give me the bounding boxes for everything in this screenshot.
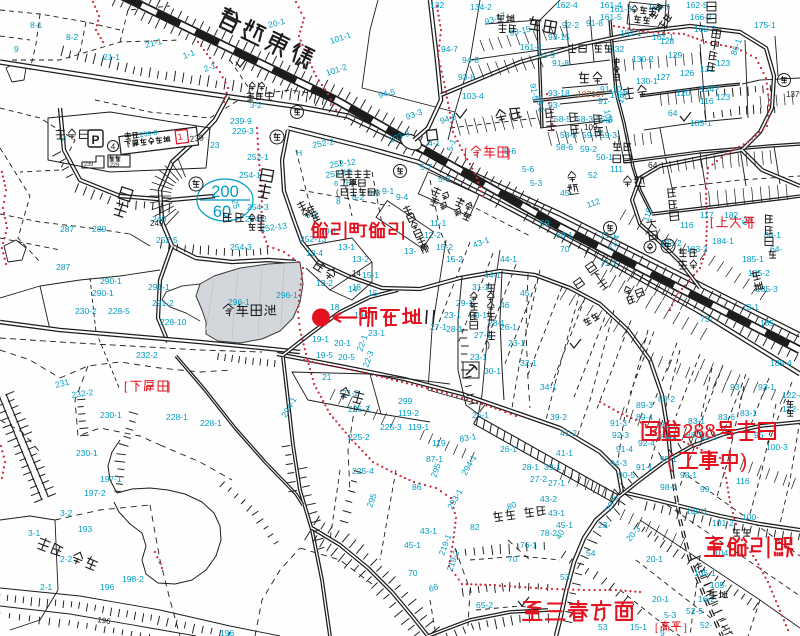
svg-text:]: ] bbox=[750, 215, 753, 229]
svg-text:53: 53 bbox=[598, 622, 608, 632]
svg-text:15-: 15- bbox=[368, 288, 380, 298]
svg-text:130-2: 130-2 bbox=[632, 54, 654, 64]
svg-text:123: 123 bbox=[716, 92, 730, 102]
svg-text:134-2: 134-2 bbox=[470, 2, 492, 12]
svg-text:200: 200 bbox=[211, 183, 239, 201]
svg-text:73-1: 73-1 bbox=[742, 302, 759, 312]
svg-text:109: 109 bbox=[584, 123, 598, 132]
svg-text:296-1: 296-1 bbox=[276, 290, 298, 300]
svg-text:13-: 13- bbox=[404, 246, 416, 256]
svg-text:229-3: 229-3 bbox=[232, 126, 254, 136]
svg-text:91-3: 91-3 bbox=[610, 418, 627, 428]
svg-text:45: 45 bbox=[520, 288, 530, 298]
svg-text:116: 116 bbox=[736, 476, 750, 486]
svg-text:15-1: 15-1 bbox=[362, 270, 379, 280]
svg-text:): ) bbox=[741, 451, 748, 473]
svg-text:132: 132 bbox=[430, 0, 444, 10]
svg-text:27-2: 27-2 bbox=[530, 474, 547, 484]
svg-text:23-1: 23-1 bbox=[470, 352, 487, 362]
svg-text:(: ( bbox=[487, 322, 490, 332]
svg-text:28-1: 28-1 bbox=[522, 462, 539, 472]
svg-text:30-1: 30-1 bbox=[470, 310, 487, 320]
svg-text:228-1: 228-1 bbox=[200, 418, 222, 428]
svg-text:4: 4 bbox=[111, 143, 116, 152]
svg-text:105-: 105- bbox=[710, 580, 727, 590]
svg-text:73-: 73- bbox=[700, 314, 712, 324]
svg-text:91-1: 91-1 bbox=[636, 462, 653, 472]
svg-text:43-1: 43-1 bbox=[548, 508, 565, 518]
svg-text:100-: 100- bbox=[742, 512, 759, 522]
svg-text:68-1: 68-1 bbox=[556, 230, 573, 240]
svg-text:52-5: 52-5 bbox=[686, 606, 703, 616]
svg-text:69: 69 bbox=[540, 218, 550, 228]
svg-text:83-2: 83-2 bbox=[658, 394, 675, 404]
svg-text:2: 2 bbox=[682, 421, 693, 443]
svg-text:27-1: 27-1 bbox=[548, 478, 565, 488]
svg-text:54: 54 bbox=[586, 548, 596, 558]
svg-text:41-2: 41-2 bbox=[560, 428, 577, 438]
svg-text:65-2: 65-2 bbox=[476, 600, 493, 610]
svg-text:9: 9 bbox=[14, 44, 19, 54]
svg-text:291-1: 291-1 bbox=[148, 282, 170, 292]
svg-text:175-1: 175-1 bbox=[754, 20, 776, 30]
svg-text:): ) bbox=[376, 188, 379, 197]
svg-text:93-: 93- bbox=[730, 382, 742, 392]
svg-text:166-2: 166-2 bbox=[690, 12, 712, 22]
svg-text:5-3: 5-3 bbox=[664, 610, 677, 620]
svg-text:9-1: 9-1 bbox=[382, 186, 395, 196]
svg-text:184-1: 184-1 bbox=[712, 236, 734, 246]
svg-text:161-2: 161-2 bbox=[520, 42, 542, 52]
svg-text:116: 116 bbox=[700, 96, 714, 106]
svg-text:239-9: 239-9 bbox=[230, 116, 252, 126]
svg-text:13-1: 13-1 bbox=[338, 242, 355, 252]
svg-text:58-8: 58-8 bbox=[560, 130, 577, 140]
svg-text:93-1: 93-1 bbox=[758, 382, 775, 392]
svg-text:3-1: 3-1 bbox=[28, 528, 41, 538]
svg-text:82: 82 bbox=[470, 522, 480, 532]
svg-text:229: 229 bbox=[110, 163, 119, 169]
svg-text:50-1: 50-1 bbox=[596, 152, 613, 162]
svg-text:21-1: 21-1 bbox=[103, 52, 120, 62]
svg-text:15-2: 15-2 bbox=[436, 242, 453, 252]
svg-text:225-4: 225-4 bbox=[352, 466, 374, 476]
svg-text:23-1: 23-1 bbox=[368, 328, 385, 338]
svg-text:34-1: 34-1 bbox=[540, 382, 557, 392]
svg-text:18: 18 bbox=[330, 302, 340, 312]
svg-text:93-18: 93-18 bbox=[548, 88, 570, 98]
svg-text:86: 86 bbox=[412, 482, 422, 492]
svg-text:120: 120 bbox=[676, 88, 690, 98]
svg-text:185-1: 185-1 bbox=[742, 254, 764, 264]
svg-text:92-2: 92-2 bbox=[562, 20, 579, 30]
svg-text:15-1: 15-1 bbox=[630, 622, 647, 632]
svg-text:83-6: 83-6 bbox=[718, 412, 735, 422]
svg-text:44-1: 44-1 bbox=[484, 270, 501, 280]
svg-text:H: H bbox=[296, 148, 302, 158]
svg-text:98-1: 98-1 bbox=[680, 470, 697, 480]
svg-text:5-3: 5-3 bbox=[530, 178, 543, 188]
svg-text:129: 129 bbox=[668, 50, 682, 60]
svg-text:119: 119 bbox=[432, 438, 446, 448]
svg-text:119-1: 119-1 bbox=[408, 422, 429, 432]
svg-text:162-4: 162-4 bbox=[556, 0, 578, 10]
svg-text:45: 45 bbox=[560, 188, 570, 198]
svg-text:]: ] bbox=[507, 146, 510, 160]
svg-text:239: 239 bbox=[84, 162, 93, 168]
svg-text:52: 52 bbox=[588, 170, 598, 180]
svg-text:183-2: 183-2 bbox=[686, 244, 708, 254]
svg-text:P: P bbox=[92, 133, 100, 147]
svg-text:(: ( bbox=[336, 188, 339, 197]
svg-text:44-1: 44-1 bbox=[500, 254, 517, 264]
svg-text:58-5: 58-5 bbox=[554, 114, 571, 124]
svg-text:20-1: 20-1 bbox=[334, 338, 351, 348]
svg-text:5-7: 5-7 bbox=[420, 162, 433, 172]
svg-text:91-4: 91-4 bbox=[616, 444, 633, 454]
svg-text:132: 132 bbox=[610, 44, 624, 54]
svg-text:98-4: 98-4 bbox=[660, 482, 677, 492]
svg-text:15-2: 15-2 bbox=[446, 254, 463, 264]
svg-text:92-3: 92-3 bbox=[612, 430, 629, 440]
svg-text:287: 287 bbox=[60, 224, 74, 234]
svg-text:290-1: 290-1 bbox=[92, 288, 114, 298]
svg-text:230-1: 230-1 bbox=[76, 448, 98, 458]
svg-text:183-1: 183-1 bbox=[690, 118, 712, 128]
svg-text:100-1: 100-1 bbox=[686, 506, 708, 516]
svg-text:4: 4 bbox=[62, 134, 67, 144]
svg-text:76-1: 76-1 bbox=[520, 540, 537, 550]
svg-text:8: 8 bbox=[705, 421, 716, 443]
svg-text:93-8: 93-8 bbox=[458, 72, 475, 82]
svg-text:58-6: 58-6 bbox=[556, 142, 573, 152]
svg-text:31-1: 31-1 bbox=[472, 282, 489, 292]
svg-text:19-1: 19-1 bbox=[312, 334, 329, 344]
svg-text:185-4: 185-4 bbox=[770, 358, 792, 368]
svg-text:[: [ bbox=[655, 623, 658, 634]
svg-text:105-1: 105-1 bbox=[694, 568, 716, 578]
svg-text:26-1: 26-1 bbox=[500, 444, 517, 454]
svg-text:53: 53 bbox=[560, 572, 570, 582]
svg-text:228-10: 228-10 bbox=[160, 317, 187, 327]
svg-text:197-2: 197-2 bbox=[84, 488, 106, 498]
svg-text:228-1: 228-1 bbox=[166, 412, 188, 422]
svg-text:94-3: 94-3 bbox=[610, 458, 627, 468]
svg-text:21: 21 bbox=[322, 372, 332, 382]
svg-text:225-3: 225-3 bbox=[380, 422, 402, 432]
svg-text:107107: 107107 bbox=[577, 89, 606, 99]
svg-text:101-2: 101-2 bbox=[712, 518, 734, 528]
svg-text:(: ( bbox=[667, 451, 674, 473]
svg-text:116: 116 bbox=[680, 220, 694, 230]
svg-text:249: 249 bbox=[150, 219, 164, 228]
svg-text:]: ] bbox=[684, 623, 687, 634]
svg-text:196: 196 bbox=[100, 582, 114, 592]
svg-text:228-5: 228-5 bbox=[108, 306, 130, 316]
svg-text:78-2: 78-2 bbox=[540, 528, 557, 538]
svg-text:13-4: 13-4 bbox=[306, 248, 323, 258]
svg-text:): ) bbox=[487, 340, 490, 350]
svg-text:9-4: 9-4 bbox=[396, 192, 409, 202]
svg-text:161-1: 161-1 bbox=[620, 28, 642, 38]
svg-text:123: 123 bbox=[716, 58, 730, 68]
svg-text:23: 23 bbox=[210, 140, 220, 150]
svg-text:43-1: 43-1 bbox=[420, 526, 437, 536]
svg-text:290-1: 290-1 bbox=[100, 276, 122, 286]
svg-text:28-1: 28-1 bbox=[488, 318, 505, 328]
svg-text:39-1: 39-1 bbox=[544, 462, 561, 472]
svg-text:127: 127 bbox=[656, 72, 670, 82]
svg-text:198-2: 198-2 bbox=[122, 574, 144, 584]
svg-text:45-1: 45-1 bbox=[556, 520, 573, 530]
svg-text:89-4: 89-4 bbox=[636, 412, 653, 422]
svg-text:14: 14 bbox=[352, 269, 361, 278]
svg-text:287: 287 bbox=[56, 262, 70, 272]
svg-text:225-2: 225-2 bbox=[348, 432, 370, 442]
svg-text:122-4: 122-4 bbox=[782, 390, 800, 400]
svg-text:299: 299 bbox=[398, 396, 412, 406]
svg-text:39-2: 39-2 bbox=[550, 412, 567, 422]
svg-text:70: 70 bbox=[408, 568, 418, 578]
svg-text:64: 64 bbox=[668, 108, 678, 118]
svg-text:230-1: 230-1 bbox=[100, 410, 122, 420]
svg-text:71-1: 71-1 bbox=[600, 258, 617, 268]
svg-text:90-5: 90-5 bbox=[618, 470, 635, 480]
svg-text:252-5: 252-5 bbox=[156, 235, 178, 245]
svg-text:99: 99 bbox=[700, 484, 710, 494]
svg-text:3-2: 3-2 bbox=[250, 101, 262, 110]
svg-text:137: 137 bbox=[786, 90, 800, 99]
svg-text:20-1: 20-1 bbox=[646, 554, 663, 564]
svg-text:20-1: 20-1 bbox=[652, 594, 669, 604]
svg-text:254-3: 254-3 bbox=[230, 242, 252, 252]
svg-text:3-2: 3-2 bbox=[60, 508, 73, 518]
svg-text:70: 70 bbox=[508, 554, 518, 564]
svg-text:30-1: 30-1 bbox=[484, 366, 501, 376]
svg-text:8-1: 8-1 bbox=[30, 20, 43, 30]
svg-text:128: 128 bbox=[660, 36, 674, 46]
svg-text:254-1: 254-1 bbox=[239, 170, 261, 180]
svg-text:41-1: 41-1 bbox=[556, 448, 573, 458]
svg-text:23-1: 23-1 bbox=[508, 338, 525, 348]
svg-text:18: 18 bbox=[352, 283, 361, 292]
svg-text:64: 64 bbox=[648, 160, 658, 170]
svg-text:185-2: 185-2 bbox=[748, 268, 770, 278]
svg-text:111: 111 bbox=[610, 164, 623, 174]
svg-text:70: 70 bbox=[560, 244, 570, 254]
svg-text:100-3: 100-3 bbox=[766, 442, 788, 452]
svg-text:19-5: 19-5 bbox=[316, 350, 333, 360]
svg-text:225-3: 225-3 bbox=[348, 404, 370, 414]
svg-text:8: 8 bbox=[336, 196, 341, 206]
svg-text:20-5: 20-5 bbox=[338, 352, 355, 362]
svg-text:89-3: 89-3 bbox=[636, 400, 653, 410]
svg-text:2-2: 2-2 bbox=[60, 554, 73, 564]
svg-text:252-1: 252-1 bbox=[247, 152, 269, 162]
svg-text:93-: 93- bbox=[548, 100, 560, 110]
svg-text:230-2: 230-2 bbox=[75, 306, 97, 316]
svg-text:193: 193 bbox=[78, 524, 92, 534]
svg-text:25-1: 25-1 bbox=[472, 410, 489, 420]
svg-text:28-1: 28-1 bbox=[446, 324, 463, 334]
svg-text:32-1: 32-1 bbox=[520, 358, 537, 368]
svg-text:196: 196 bbox=[220, 628, 234, 636]
svg-text:59-2: 59-2 bbox=[580, 144, 597, 154]
svg-text:197-1: 197-1 bbox=[100, 474, 122, 484]
svg-text:291-2: 291-2 bbox=[152, 298, 174, 308]
svg-text:91-8: 91-8 bbox=[586, 18, 603, 28]
svg-text:23-: 23- bbox=[598, 520, 610, 530]
svg-text:239: 239 bbox=[189, 132, 205, 144]
svg-text:4-1: 4-1 bbox=[428, 138, 441, 148]
svg-text:83-1: 83-1 bbox=[740, 408, 757, 418]
svg-text:8-2: 8-2 bbox=[66, 32, 79, 42]
svg-text:45-1: 45-1 bbox=[404, 540, 421, 550]
svg-text:254-3: 254-3 bbox=[247, 202, 269, 212]
svg-text:5-6: 5-6 bbox=[522, 164, 535, 174]
svg-text:130-1: 130-1 bbox=[636, 76, 658, 86]
svg-text:]: ] bbox=[167, 379, 170, 393]
svg-text:232-2: 232-2 bbox=[136, 350, 158, 360]
svg-text:52-: 52- bbox=[700, 620, 712, 630]
svg-text:46: 46 bbox=[500, 300, 510, 310]
svg-text:162-5: 162-5 bbox=[686, 0, 708, 10]
svg-text:185: 185 bbox=[760, 318, 774, 328]
svg-text:289: 289 bbox=[92, 224, 106, 234]
svg-text:119-2: 119-2 bbox=[398, 408, 419, 418]
svg-text:2-1: 2-1 bbox=[40, 582, 53, 592]
svg-text:11-1: 11-1 bbox=[430, 218, 447, 228]
svg-text:103-4: 103-4 bbox=[462, 91, 484, 101]
svg-text:91-8: 91-8 bbox=[552, 58, 569, 68]
svg-text:94-7: 94-7 bbox=[441, 44, 458, 54]
svg-text:94-8: 94-8 bbox=[462, 55, 479, 65]
svg-text:23-1: 23-1 bbox=[444, 310, 461, 320]
svg-text:43-2: 43-2 bbox=[540, 494, 557, 504]
svg-text:126: 126 bbox=[680, 68, 694, 78]
svg-text:6: 6 bbox=[334, 179, 338, 188]
svg-text:8: 8 bbox=[693, 421, 704, 443]
